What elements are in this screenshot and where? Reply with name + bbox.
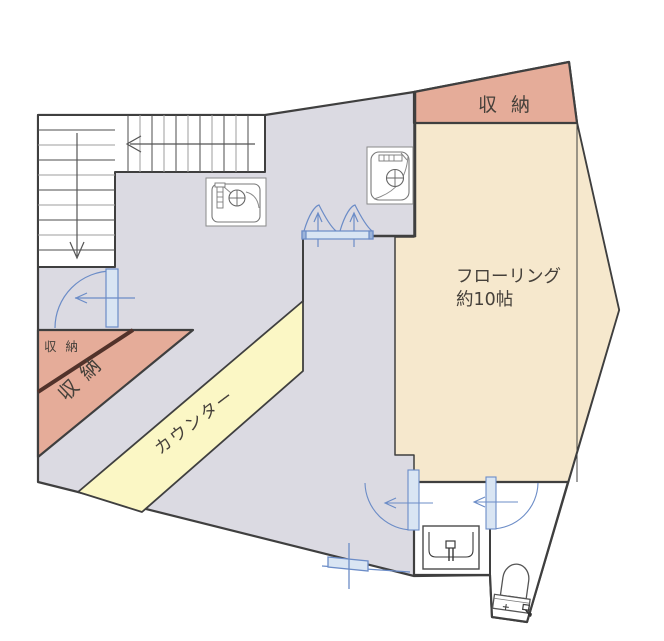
floor-plan: 収納 フローリング 約10帖 収納 収納 カウンター — [0, 0, 664, 641]
label-storage-under-stair: 収納 — [44, 339, 87, 354]
kitchen-sink-icon — [206, 178, 266, 226]
label-flooring-size: 約10帖 — [456, 290, 513, 310]
door-threshold-cap — [302, 231, 306, 239]
floor-plan-page: 収納 フローリング 約10帖 収納 収納 カウンター — [0, 0, 664, 641]
door-leaf — [408, 470, 419, 530]
hand-sink-icon — [367, 147, 413, 204]
vanity-sink-icon — [423, 526, 479, 569]
label-flooring-name: フローリング — [456, 267, 561, 287]
door-leaf — [486, 477, 496, 529]
door-threshold — [302, 231, 373, 239]
label-storage-top: 収納 — [478, 94, 544, 116]
door-threshold-cap — [369, 231, 373, 239]
